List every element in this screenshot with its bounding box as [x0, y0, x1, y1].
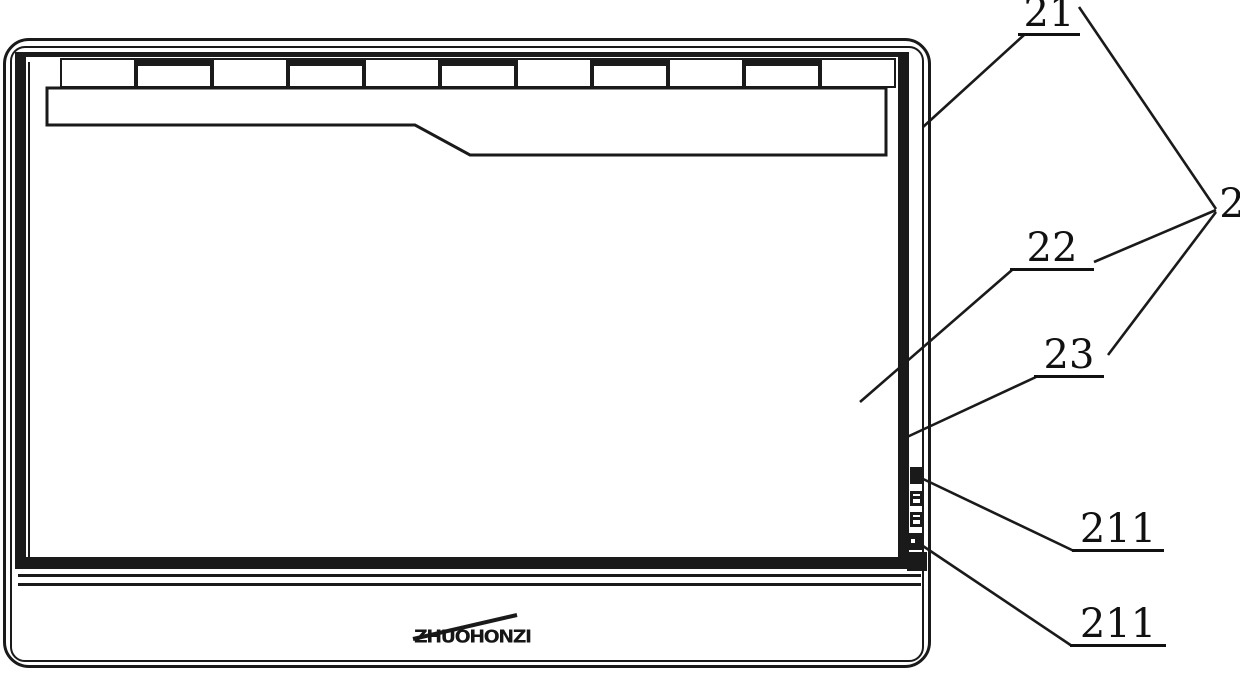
group-line-2-to-23: [1108, 212, 1216, 355]
ref-label-211-upper: 211: [1072, 509, 1164, 552]
leader-line-211-lower: [917, 542, 1072, 646]
side-button-3: [910, 512, 923, 527]
ref-label-22: 22: [1010, 228, 1094, 271]
brand-logo: ZHUOHONZI: [414, 625, 522, 649]
hinge-tab: [288, 58, 364, 88]
hinge-tab: [744, 58, 820, 88]
hinge-tab: [136, 58, 212, 88]
ref-label-2: 2: [1217, 184, 1240, 224]
hinge-tab: [668, 58, 744, 88]
hinge-tab: [60, 58, 136, 88]
group-line-22-to-2: [1094, 210, 1216, 262]
ref-label-211-lower: 211: [1070, 604, 1166, 647]
group-line-21-to-2: [1079, 7, 1216, 209]
hinge-tab: [440, 58, 516, 88]
base-line-lower: [18, 583, 921, 586]
hinge-tab: [516, 58, 592, 88]
side-button-1: [910, 467, 923, 484]
hinge-tab: [364, 58, 440, 88]
hinge-tab: [592, 58, 668, 88]
side-button-4-notch: [911, 539, 915, 543]
bottom-corner-block: [907, 552, 927, 571]
base-line-upper: [18, 574, 921, 577]
screen-frame: [15, 52, 909, 569]
hinge-tab: [212, 58, 288, 88]
side-button-4: [909, 533, 923, 550]
ref-label-23: 23: [1034, 335, 1104, 378]
hinge-tab: [820, 58, 896, 88]
side-button-2: [910, 491, 923, 506]
leader-line-211-upper: [921, 478, 1074, 551]
side-button-3-bar: [913, 517, 920, 520]
patent-figure-page: { "figure": { "labels": { "ref2": "2", "…: [0, 0, 1240, 675]
screen-inner-left-line: [28, 62, 30, 557]
side-button-2-bar: [913, 496, 920, 499]
ref-label-21: 21: [1018, 0, 1080, 36]
leader-line-21: [923, 35, 1024, 127]
